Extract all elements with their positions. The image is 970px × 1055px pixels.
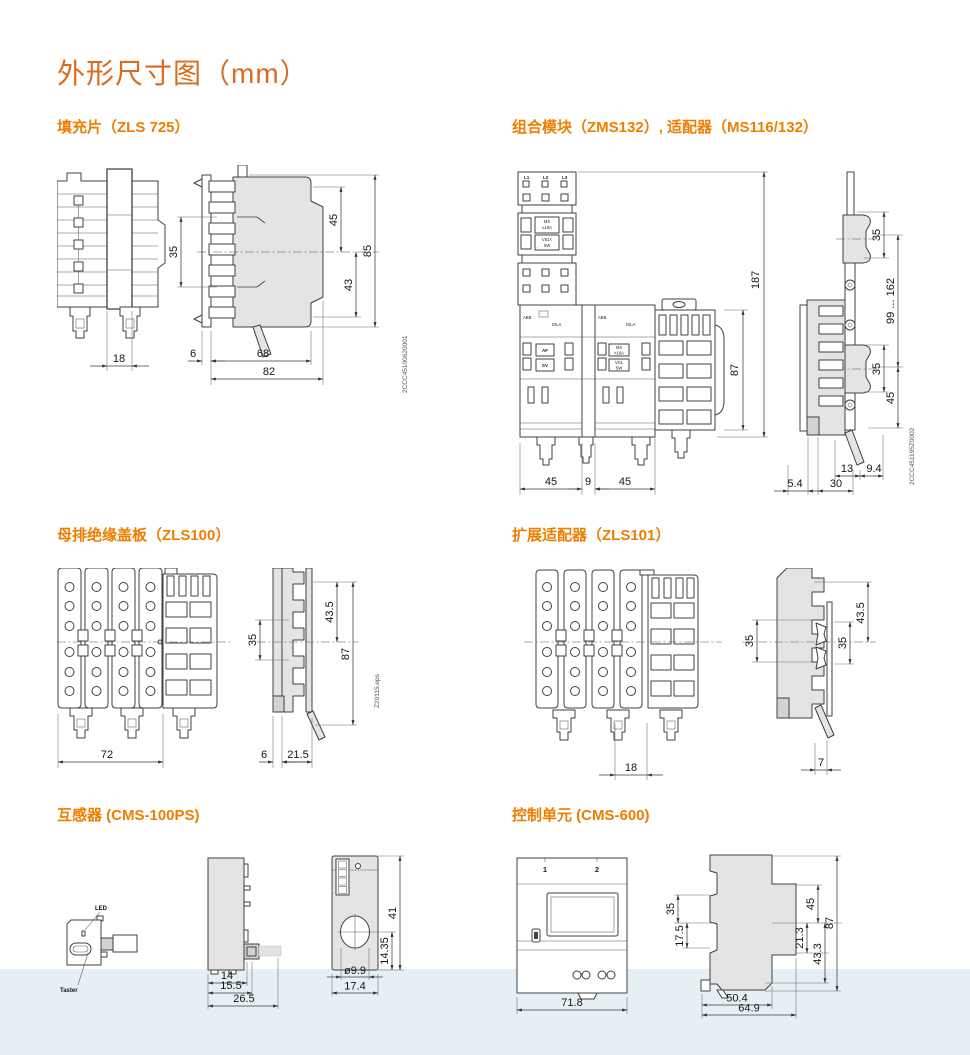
dim-label: 43: [343, 279, 355, 291]
module-label: VS1<: [542, 237, 553, 242]
dim-label: 87: [340, 648, 352, 660]
dim-label: 21.5: [287, 749, 308, 761]
section-heading-zls725: 填充片（ZLS 725）: [57, 118, 467, 137]
dim-label: 30: [830, 478, 842, 490]
section-heading-cms600: 控制单元 (CMS-600): [512, 806, 962, 825]
zls100-drawing: 72 35 43.5 87 6 21.5 Z20115.eps: [57, 568, 477, 780]
dim-label: 35: [665, 903, 677, 915]
cms100-side-view: 14 15.5 26.5: [208, 858, 281, 1009]
zls100-side-view: 35 43.5 87 6 21.5 Z20115.eps: [247, 568, 381, 768]
cms600-side-view: 35 17.5 21.3 45 43.3 87 50.4 64.9: [665, 855, 842, 1019]
section-heading-zms132: 组合模块（ZMS132）, 适配器（MS116/132）: [512, 118, 962, 137]
section-zms132: 组合模块（ZMS132）, 适配器（MS116/132） L1 L2 L3 MS…: [512, 118, 962, 510]
module-label: ≤16A: [542, 225, 552, 230]
dim-label: 85: [362, 245, 374, 257]
module-label: >16A: [614, 351, 624, 356]
dim-label: 5.4: [787, 478, 802, 490]
module-label: DILA: [552, 322, 562, 327]
dim-label: 6: [261, 749, 267, 761]
dim-label: 87: [729, 364, 741, 376]
module-label: MS: [544, 219, 550, 224]
dim-label: 26.5: [233, 993, 254, 1005]
dim-label: 17.5: [674, 925, 686, 946]
module-label: DILA: [626, 322, 636, 327]
module-label: SV: [542, 363, 549, 368]
terminal-label: L2: [543, 175, 549, 180]
zls101-drawing: 18 35 35 43.5 7: [512, 568, 958, 783]
page-title: 外形尺寸图（mm）: [57, 52, 309, 92]
section-cms100ps: 互感器 (CMS-100PS) LED Taster: [57, 806, 481, 1011]
section-cms600: 控制单元 (CMS-600) 1 2 71.8 35 17.5: [512, 806, 962, 1031]
zls101-front-view: 18: [524, 570, 722, 780]
dim-label: 18: [625, 762, 637, 774]
dim-label: 17.4: [344, 981, 365, 993]
dim-label: 45: [328, 214, 340, 226]
dim-label: 45: [545, 476, 557, 488]
zms-tall-module-front: L1 L2 L3 MS ≤16A VS1< SW: [518, 172, 576, 305]
dim-label: 21.3: [794, 927, 806, 948]
dim-label: 71.8: [561, 997, 582, 1009]
terminal-label: L3: [562, 175, 568, 180]
dim-label: 7: [818, 757, 824, 769]
dim-label: 13: [841, 463, 853, 475]
dim-label: 64.9: [738, 1003, 759, 1015]
dim-label: 87: [824, 917, 836, 929]
zls725-side-view: 35 45 43 85 6 68 82 2CCC45100620001: [168, 165, 409, 393]
dim-label: 35: [871, 229, 883, 241]
dim-label: 82: [263, 366, 275, 378]
cms100ps-drawing: LED Taster 14 15.5 26.5: [57, 846, 477, 1011]
dim-label: 187: [750, 271, 762, 289]
terminal-number: 1: [543, 865, 547, 874]
dim-label: 99 ... 162: [885, 278, 897, 324]
zls725-drawing: 18 35 45 43 85 6 68: [57, 165, 457, 405]
dim-label: 43.5: [855, 602, 867, 623]
terminal-label: L1: [524, 175, 530, 180]
zms132-drawing: L1 L2 L3 MS ≤16A VS1< SW ABB DILA AF SV: [512, 165, 958, 510]
cms100-3d-view: LED Taster: [60, 906, 137, 994]
dim-label: 35: [871, 363, 883, 375]
dim-label: 43.5: [324, 601, 336, 622]
brand-label: ABB: [598, 315, 607, 320]
module-label: SW: [616, 366, 623, 371]
zls725-front-view: 18: [57, 169, 165, 371]
brand-label: ABB: [523, 315, 532, 320]
section-zls100: 母排绝缘盖板（ZLS100）: [57, 526, 481, 780]
zls100-front-view: 72: [57, 568, 232, 768]
dim-label: ø9.9: [344, 965, 366, 977]
section-zls725: 填充片（ZLS 725） 18: [57, 118, 467, 405]
zms-side-view: 35 99 ... 162 35 45 13 9.4 5.4 30 2CCC45…: [774, 172, 916, 495]
dim-label: 35: [837, 637, 849, 649]
dim-label: 45: [619, 476, 631, 488]
module-label: MS: [616, 345, 622, 350]
module-label: SW: [544, 243, 551, 248]
section-heading-cms100ps: 互感器 (CMS-100PS): [57, 806, 481, 825]
section-zls101: 扩展适配器（ZLS101）: [512, 526, 962, 783]
dim-label: 6: [190, 348, 196, 360]
module-label: AF: [542, 348, 548, 353]
dim-label: 35: [247, 634, 259, 646]
section-heading-zls101: 扩展适配器（ZLS101）: [512, 526, 962, 545]
dim-label: 9.4: [866, 463, 881, 475]
drawing-number: 2CCC451195Z0002: [909, 427, 916, 485]
dim-label: 18: [113, 353, 125, 365]
dim-label: 68: [257, 348, 269, 360]
dim-label: 41: [387, 907, 399, 919]
dim-label: 43.3: [812, 943, 824, 964]
dim-label: 72: [101, 749, 113, 761]
dim-label: 9: [585, 476, 591, 488]
cms100-front-view: 41 14.35 ø9.9 17.4: [327, 856, 404, 996]
taster-label: Taster: [60, 988, 78, 994]
drawing-number: 2CCC45100620001: [402, 335, 409, 393]
module-label: VS1: [615, 360, 624, 365]
section-heading-zls100: 母排绝缘盖板（ZLS100）: [57, 526, 481, 545]
dim-label: 14.35: [379, 937, 391, 965]
drawing-number: Z20115.eps: [374, 673, 381, 708]
cms600-front-view: 1 2 71.8: [517, 858, 627, 1014]
zls101-side-view: 35 35 43.5 7: [742, 568, 876, 775]
cms600-drawing: 1 2 71.8 35 17.5 21.3 45: [512, 846, 958, 1031]
dim-label: 45: [805, 898, 817, 910]
dim-label: 35: [168, 246, 180, 258]
terminal-number: 2: [595, 865, 599, 874]
led-label: LED: [95, 906, 108, 912]
dim-label: 15.5: [220, 980, 241, 992]
dim-label: 45: [885, 392, 897, 404]
dim-label: 35: [744, 635, 756, 647]
